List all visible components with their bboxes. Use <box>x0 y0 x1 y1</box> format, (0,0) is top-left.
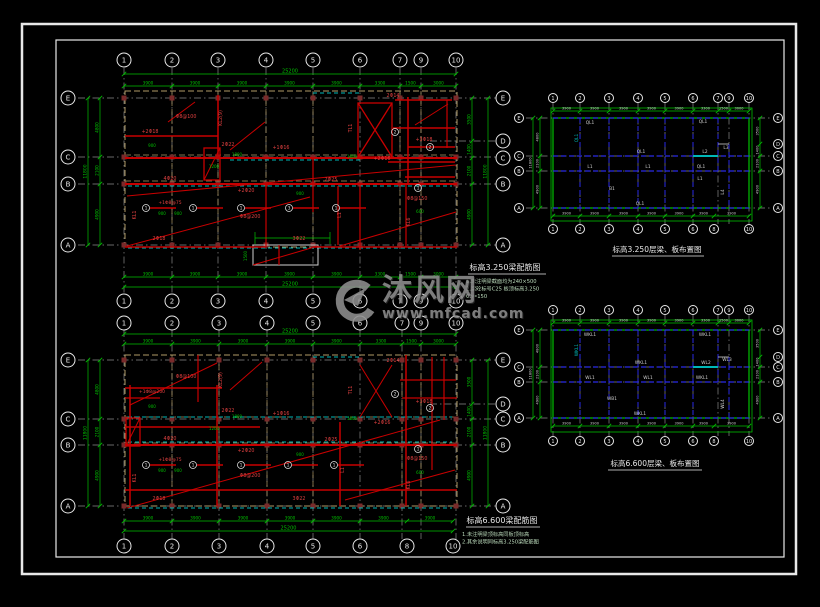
grid-bubble-label: A <box>66 503 71 511</box>
plan-note: 2.梁砼标号C25 板顶标高3.250 <box>466 285 539 293</box>
grid-bubble-label: A <box>517 416 521 422</box>
cad-label: L2 <box>702 149 707 155</box>
dimension-text: 3900 <box>562 211 571 215</box>
grid-bubble-label: 1 <box>122 298 126 306</box>
callout-number: 3 <box>288 206 291 212</box>
dimension-text: 4900 <box>755 185 759 194</box>
dimension-text: 1500 <box>719 318 728 322</box>
grid-bubble-label: E <box>501 357 505 365</box>
column-mark <box>454 358 459 363</box>
dimension-text: 4900 <box>94 209 99 220</box>
dimension-text: 4800 <box>94 122 99 133</box>
grid-bubble-label: 8 <box>712 227 715 233</box>
cad-label: +1Φ8@75 <box>158 457 181 463</box>
dimension-text: 4900 <box>94 470 99 481</box>
plan-beam-3250: 2520039003900390039003900330015003000390… <box>61 53 546 308</box>
cad-label: KL2(9) <box>218 372 224 388</box>
dimension-text: 3000 <box>735 318 744 322</box>
column-mark <box>170 358 175 363</box>
cad-label: 2Φ22 <box>222 142 235 148</box>
grid-bubble-label: 5 <box>663 439 666 445</box>
grid-bubble-label: B <box>66 181 71 189</box>
cad-label: +1Φ8@75 <box>158 200 181 206</box>
cad-label: QL1 <box>637 149 646 155</box>
grid-bubble-label: E <box>66 357 70 365</box>
grid-bubble-label: 7 <box>716 308 719 314</box>
grid-bubble-label: 7 <box>716 96 719 102</box>
grid-bubble-label: B <box>517 169 521 175</box>
grid-bubble-label: C <box>66 416 71 424</box>
cad-label: +2Φ20 <box>238 448 255 454</box>
cad-label: TL1 <box>348 124 354 134</box>
cad-label: QL1 <box>699 119 708 125</box>
grid-bubble-label: 8 <box>712 439 715 445</box>
grid-bubble-label: 5 <box>311 543 315 551</box>
cad-label: L4 <box>720 189 726 194</box>
cad-label: WL1 <box>643 375 653 381</box>
dimension-text: 3900 <box>378 515 389 520</box>
dimension-text: 3900 <box>331 271 342 276</box>
cad-label: +2Φ18 <box>142 129 159 135</box>
dimension-text: 3900 <box>590 318 599 322</box>
cad-label: Φ8@100 <box>176 374 197 380</box>
grid-bubble-label: 4 <box>636 96 639 102</box>
cad-label: Φ8@200 <box>240 214 261 220</box>
cad-rect <box>553 330 749 418</box>
dimension-text: 3900 <box>331 338 342 343</box>
grid-bubble-label: 3 <box>216 298 220 306</box>
grid-bubble-label: 9 <box>727 308 730 314</box>
grid-bubble-label: 6 <box>691 227 694 233</box>
cad-label: 1200 <box>209 164 220 169</box>
grid-bubble-label: 4 <box>264 57 269 65</box>
cad-label: WL2 <box>701 360 711 366</box>
grid-bubble-label: 4 <box>636 308 639 314</box>
cad-line <box>253 246 318 265</box>
callout-number: 1 <box>240 206 243 212</box>
grid-bubble-label: 10 <box>452 57 461 65</box>
grid-bubble-label: 5 <box>311 320 315 328</box>
cad-label: 4Φ20 <box>164 176 177 182</box>
plan-title: 标高3.250层梁、板布置图 <box>613 244 702 254</box>
cad-label: 2Φ18 <box>153 496 166 502</box>
callout-number: 1 <box>145 463 148 469</box>
grid-bubble-label: 10 <box>746 227 752 233</box>
dimension-text: 3900 <box>285 515 296 520</box>
column-mark <box>358 96 363 101</box>
cad-line <box>340 212 456 246</box>
cad-label: 3Φ22 <box>293 236 306 242</box>
plan-note: 2.其余说明同标高3.250梁配筋图 <box>462 538 539 546</box>
cad-line <box>230 362 262 390</box>
dimension-text: 3900 <box>190 338 201 343</box>
grid-bubble-label: 5 <box>663 308 666 314</box>
dimension-text: 2100 <box>535 370 539 379</box>
dimension-text: 1400 <box>466 144 471 155</box>
callout-number: 1 <box>192 206 195 212</box>
cad-label: +1Φ16 <box>273 411 290 417</box>
grid-bubble-label: D <box>500 401 505 409</box>
dimension-text: 4800 <box>535 133 539 142</box>
grid-bubble-label: C <box>66 154 71 162</box>
dimension-text: 1500 <box>405 80 416 85</box>
grid-bubble-label: B <box>66 442 71 450</box>
column-mark <box>217 358 222 363</box>
callout-number: 2 <box>394 392 397 398</box>
cad-label: +3Φ18 <box>416 137 433 143</box>
grid-bubble-label: C <box>517 365 521 371</box>
grid-bubble-label: 2 <box>578 308 581 314</box>
plan-title: 标高6.600层梁、板布置图 <box>611 458 700 468</box>
grid-bubble-label: 6 <box>358 57 363 65</box>
grid-bubble-label: D <box>776 355 780 361</box>
grid-bubble-label: 5 <box>311 57 315 65</box>
cad-label: QL1 <box>697 164 706 170</box>
callout-number: 2 <box>429 145 432 151</box>
dimension-text: 3900 <box>727 421 736 425</box>
cad-label: WB1 <box>607 396 617 402</box>
cad-label: +1Φ16 <box>273 145 290 151</box>
grid-bubble-label: 7 <box>400 320 404 328</box>
grid-bubble-label: C <box>501 155 506 163</box>
cad-label: 2Φ25 <box>325 437 338 443</box>
column-mark <box>311 96 316 101</box>
grid-bubble-label: 2 <box>578 227 581 233</box>
grid-bubble-label: B <box>776 169 780 175</box>
callout-number: 1 <box>240 463 243 469</box>
dimension-text: 3900 <box>284 80 295 85</box>
dimension-text: 3300 <box>701 318 710 322</box>
column-mark <box>122 504 127 509</box>
grid-bubble-label: 4 <box>265 320 270 328</box>
cad-label: L1 <box>697 176 702 182</box>
dimension-text: 3300 <box>375 80 386 85</box>
cad-label: 600 <box>416 209 424 214</box>
cad-label: WL4 <box>720 399 726 409</box>
dimension-text: 3500 <box>755 339 759 348</box>
callout-number: 1 <box>417 447 420 453</box>
cad-label: 1200 <box>209 426 220 431</box>
grid-bubble-label: 3 <box>217 543 221 551</box>
cad-line <box>415 104 448 125</box>
dimension-text: 3900 <box>285 338 296 343</box>
dimension-text: 25200 <box>282 281 298 287</box>
dimension-text: 3900 <box>647 106 656 110</box>
grid-bubble-label: 8 <box>405 543 409 551</box>
grid-bubble-label: 1 <box>122 320 126 328</box>
cad-label: 600 <box>416 470 424 475</box>
cad-rect <box>553 118 749 208</box>
cad-label: L1 <box>340 467 346 473</box>
dimension-text: 3000 <box>433 338 444 343</box>
cad-label: 1800 <box>347 154 358 159</box>
dimension-text: 3000 <box>433 271 444 276</box>
cad-label: 900 <box>158 211 166 216</box>
dimension-text: 3900 <box>699 211 708 215</box>
grid-bubble-label: 1 <box>551 227 554 233</box>
column-mark <box>454 96 459 101</box>
cad-label: WL1 <box>585 375 595 381</box>
cad-label: WKL1 <box>584 332 596 338</box>
cad-label: WKL1 <box>574 344 580 356</box>
cad-label: 1800 <box>347 416 358 421</box>
dimension-text: 3900 <box>562 318 571 322</box>
cad-label: 4Φ20 <box>164 436 177 442</box>
column-mark <box>358 358 363 363</box>
dimension-text: 3900 <box>619 211 628 215</box>
dimension-text: 3900 <box>143 515 154 520</box>
cad-label: 1800 <box>232 414 243 419</box>
grid-bubble-label: 6 <box>358 320 363 328</box>
cad-drawing-viewport: 2520039003900390039003900330015003000390… <box>0 0 820 607</box>
dimension-text: 4800 <box>535 344 539 353</box>
dimension-text: 3300 <box>376 338 387 343</box>
plan-title: 标高6.600梁配筋图 <box>467 515 538 525</box>
cad-label: TL1 <box>348 386 354 396</box>
cad-label: +1Φ8@200 <box>139 389 165 395</box>
grid-bubble-label: E <box>776 116 779 122</box>
dimension-text: 1400 <box>755 358 759 367</box>
grid-bubble-label: 9 <box>727 96 730 102</box>
dimension-text: 3900 <box>647 421 656 425</box>
dimension-text: 2100 <box>755 370 759 379</box>
cad-line <box>230 122 265 150</box>
dimension-text: 3300 <box>701 106 710 110</box>
dimension-text: 4900 <box>466 470 471 481</box>
grid-bubble-label: 3 <box>607 439 610 445</box>
grid-bubble-label: 10 <box>746 439 752 445</box>
grid-bubble-label: C <box>776 365 780 371</box>
column-mark <box>419 358 424 363</box>
cad-label: KL6 <box>406 481 412 490</box>
grid-bubble-label: C <box>517 154 521 160</box>
grid-bubble-label: 9 <box>419 320 423 328</box>
grid-bubble-label: A <box>501 503 506 511</box>
dimension-text: 3000 <box>735 106 744 110</box>
dimension-text: 3500 <box>755 127 759 136</box>
grid-bubble-label: 10 <box>452 320 461 328</box>
grid-bubble-label: C <box>501 416 506 424</box>
cad-line <box>127 420 440 508</box>
dimension-text: 3900 <box>590 421 599 425</box>
dimension-text: 3900 <box>647 318 656 322</box>
callout-number: 1 <box>417 186 420 192</box>
cad-label: Φ8@200 <box>240 473 261 479</box>
cad-label: WL3 <box>722 357 732 363</box>
dimension-text: 1400 <box>466 406 471 417</box>
dimension-text: 3500 <box>466 114 471 125</box>
dimension-text: 3900 <box>562 421 571 425</box>
cad-label: 2Φ18 <box>153 236 166 242</box>
cad-line <box>130 363 217 405</box>
grid-bubble-label: 1 <box>122 57 126 65</box>
grid-bubble-label: B <box>501 181 506 189</box>
grid-bubble-label: A <box>66 242 71 250</box>
grid-bubble-label: 2 <box>170 320 174 328</box>
dimension-text: 4800 <box>94 384 99 395</box>
dimension-text: 3900 <box>590 211 599 215</box>
dimension-text: 25200 <box>282 68 298 74</box>
plan-note: Ch=150 <box>466 294 487 300</box>
grid-bubble-label: B <box>776 380 780 386</box>
grid-bubble-label: 7 <box>398 57 402 65</box>
dimension-text: 3900 <box>143 338 154 343</box>
cad-label: 2Φ14 <box>387 93 400 99</box>
grid-bubble-label: 2 <box>578 439 581 445</box>
dimension-text: 2100 <box>535 159 539 168</box>
grid-bubble-label: 1 <box>551 96 554 102</box>
dimension-text: 3900 <box>190 515 201 520</box>
dimension-text: 11800 <box>482 426 488 440</box>
grid-bubble-label: 1 <box>122 543 126 551</box>
cad-label: QL1 <box>574 133 580 142</box>
plan-slab-6600: 3900390039003900390033001500300039003900… <box>515 306 783 471</box>
grid-bubble-label: 1 <box>551 308 554 314</box>
grid-bubble-label: 6 <box>358 543 363 551</box>
grid-bubble-label: E <box>517 328 520 334</box>
column-mark <box>400 358 405 363</box>
dimension-text: 3900 <box>619 421 628 425</box>
dimension-text: 3900 <box>425 515 436 520</box>
dimension-text: 4900 <box>535 396 539 405</box>
grid-bubble-label: 2 <box>578 96 581 102</box>
grid-bubble-label: E <box>501 95 505 103</box>
cad-label: WKL1 <box>696 375 708 381</box>
dimension-text: 3900 <box>562 106 571 110</box>
plan-note: 1.未注明梁顶标高同板顶标高 <box>462 530 529 538</box>
grid-bubble-label: 2 <box>170 543 174 551</box>
dimension-text: 2100 <box>466 426 471 437</box>
grid-bubble-label: A <box>776 416 780 422</box>
grid-bubble-label: 10 <box>449 543 458 551</box>
grid-bubble-label: D <box>776 142 780 148</box>
cad-label: 2Φ25 <box>325 177 338 183</box>
cad-label: 900 <box>296 191 304 196</box>
grid-bubble-label: 10 <box>746 308 752 314</box>
dimension-text: 3900 <box>331 80 342 85</box>
cad-label: 900 <box>148 143 156 148</box>
dimension-text: 3900 <box>699 421 708 425</box>
cad-label: KL1 <box>132 211 138 220</box>
cad-label: +2Φ16 <box>374 420 391 426</box>
cad-label: 900 <box>148 404 156 409</box>
dimension-text: 2100 <box>94 426 99 437</box>
column-mark <box>264 96 269 101</box>
grid-bubble-label: B <box>517 380 521 386</box>
grid-bubble-label: E <box>66 95 70 103</box>
callout-number: 1 <box>333 463 336 469</box>
dimension-text: 1500 <box>406 338 417 343</box>
callout-number: 1 <box>192 463 195 469</box>
grid-bubble-label: 5 <box>311 298 315 306</box>
grid-bubble-label: 10 <box>452 298 461 306</box>
cad-label: +3Φ18 <box>416 399 433 405</box>
dimension-text: 11800 <box>82 426 88 440</box>
grid-bubble-label: 4 <box>265 543 270 551</box>
dimension-text: 3900 <box>237 80 248 85</box>
dimension-text: 4900 <box>466 209 471 220</box>
cad-label: QL1 <box>636 201 645 207</box>
column-mark <box>122 358 127 363</box>
grid-bubble-label: 10 <box>746 96 752 102</box>
cad-label: +2Φ20 <box>238 188 255 194</box>
dimension-text: 3900 <box>237 271 248 276</box>
grid-bubble-label: E <box>517 116 520 122</box>
dimension-text: 3900 <box>619 318 628 322</box>
dimension-text: 11800 <box>528 157 532 168</box>
dimension-text: 4900 <box>535 185 539 194</box>
dimension-text: 1500 <box>405 271 416 276</box>
cad-label: 1500 <box>243 250 248 261</box>
cad-label: L3 <box>723 145 728 151</box>
dimension-text: 25200 <box>281 525 297 531</box>
grid-bubble-label: 9 <box>419 57 423 65</box>
dimension-text: 3900 <box>675 106 684 110</box>
dimension-text: 11800 <box>82 164 88 178</box>
grid-bubble-label: 3 <box>607 96 610 102</box>
grid-bubble-label: A <box>776 206 780 212</box>
dimension-text: 3900 <box>727 211 736 215</box>
dimension-text: 2100 <box>755 159 759 168</box>
cad-label: L1 <box>337 212 343 218</box>
plan-title: 标高3.250梁配筋图 <box>470 262 541 272</box>
dimension-text: 3900 <box>675 421 684 425</box>
plan-slab-3250: 3900390039003900390033001500300039003900… <box>515 94 783 257</box>
dimension-text: 1500 <box>719 106 728 110</box>
dimension-text: 3900 <box>619 106 628 110</box>
grid-bubble-label: C <box>776 154 780 160</box>
dimension-text: 3900 <box>238 515 249 520</box>
cad-canvas: 2520039003900390039003900330015003000390… <box>0 0 820 607</box>
column-mark <box>454 417 459 422</box>
dimension-text: 3900 <box>331 515 342 520</box>
grid-bubble-label: 9 <box>419 298 423 306</box>
dimension-text: 3900 <box>190 271 201 276</box>
grid-bubble-label: 6 <box>358 298 363 306</box>
cad-label: +2Φ16 <box>374 156 391 162</box>
column-mark <box>170 96 175 101</box>
grid-bubble-label: 4 <box>636 439 639 445</box>
cad-label: Φ8@150 <box>407 196 428 202</box>
cad-label: KL6 <box>406 218 412 227</box>
callout-number: 1 <box>287 463 290 469</box>
cad-label: 900 <box>174 211 182 216</box>
grid-bubble-label: 6 <box>691 96 694 102</box>
cad-label: QL1 <box>586 120 595 126</box>
dimension-text: 2100 <box>94 165 99 176</box>
grid-bubble-label: A <box>501 242 506 250</box>
column-mark <box>311 358 316 363</box>
dimension-text: 11800 <box>482 164 488 178</box>
cad-label: 900 <box>158 468 166 473</box>
dimension-text: 11800 <box>528 368 532 379</box>
grid-bubble-label: 3 <box>216 57 220 65</box>
dimension-text: 3300 <box>375 271 386 276</box>
dimension-text: 3900 <box>590 106 599 110</box>
grid-bubble-label: 6 <box>691 308 694 314</box>
cad-label: 900 <box>296 452 304 457</box>
grid-bubble-label: B <box>501 442 506 450</box>
dimension-text: 3000 <box>433 80 444 85</box>
dimension-text: 3900 <box>143 271 154 276</box>
dimension-text: 25200 <box>282 328 298 334</box>
callout-number: 1 <box>145 206 148 212</box>
grid-bubble-label: 1 <box>551 439 554 445</box>
grid-bubble-label: 2 <box>170 298 174 306</box>
cad-label: WKL1 <box>699 332 711 338</box>
dimension-text: 3900 <box>675 318 684 322</box>
cad-line <box>345 470 455 500</box>
